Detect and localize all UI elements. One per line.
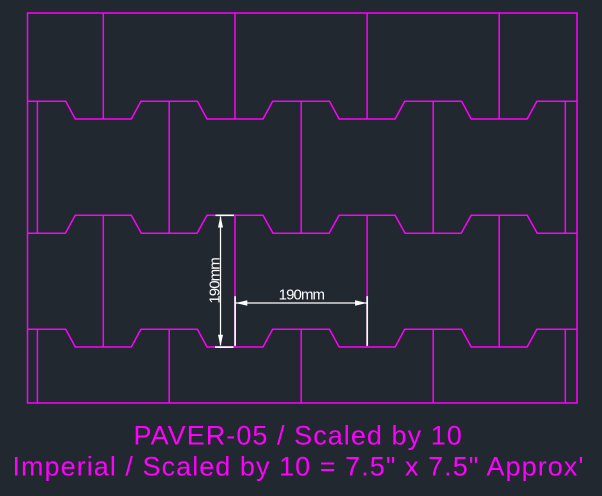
- svg-text:Imperial / Scaled by 10 = 7.5": Imperial / Scaled by 10 = 7.5" x 7.5" Ap…: [12, 451, 584, 481]
- svg-text:190mm: 190mm: [279, 287, 325, 304]
- svg-text:190mm: 190mm: [206, 258, 223, 304]
- svg-text:PAVER-05 / Scaled by 10: PAVER-05 / Scaled by 10: [134, 420, 463, 450]
